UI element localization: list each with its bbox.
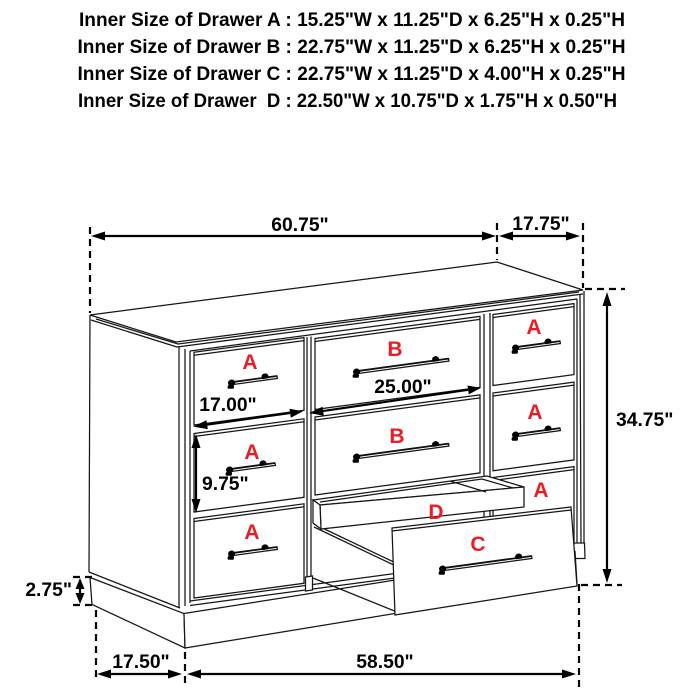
svg-text:Inner Size of Drawer B : 22.75: Inner Size of Drawer B : 22.75"W x 11.25…: [78, 37, 626, 58]
svg-text:9.75": 9.75": [202, 474, 249, 495]
svg-text:A: A: [527, 401, 542, 424]
svg-text:34.75": 34.75": [616, 410, 673, 431]
svg-text:C: C: [470, 533, 485, 556]
svg-text:Inner Size of Drawer D : 22.5: Inner Size of Drawer D : 22.50"W x 10.75…: [78, 91, 617, 112]
svg-text:25.00": 25.00": [374, 377, 431, 398]
svg-text:A: A: [244, 521, 259, 544]
svg-text:Inner Size of Drawer A : 15.25: Inner Size of Drawer A : 15.25"W x 11.25…: [79, 10, 625, 31]
svg-text:A: A: [533, 479, 548, 502]
svg-text:A: A: [244, 441, 259, 464]
svg-text:A: A: [242, 351, 257, 374]
svg-text:Inner Size of Drawer C : 22.75: Inner Size of Drawer C : 22.75"W x 11.25…: [78, 64, 626, 85]
svg-text:A: A: [526, 316, 541, 339]
svg-text:58.50": 58.50": [356, 652, 413, 673]
svg-text:2.75": 2.75": [25, 580, 72, 601]
svg-text:B: B: [387, 338, 402, 361]
svg-text:17.50": 17.50": [112, 652, 169, 673]
svg-text:B: B: [389, 425, 404, 448]
svg-text:17.00": 17.00": [199, 395, 256, 416]
svg-text:D: D: [428, 501, 443, 524]
svg-text:60.75": 60.75": [271, 215, 328, 236]
svg-text:17.75": 17.75": [512, 214, 569, 235]
